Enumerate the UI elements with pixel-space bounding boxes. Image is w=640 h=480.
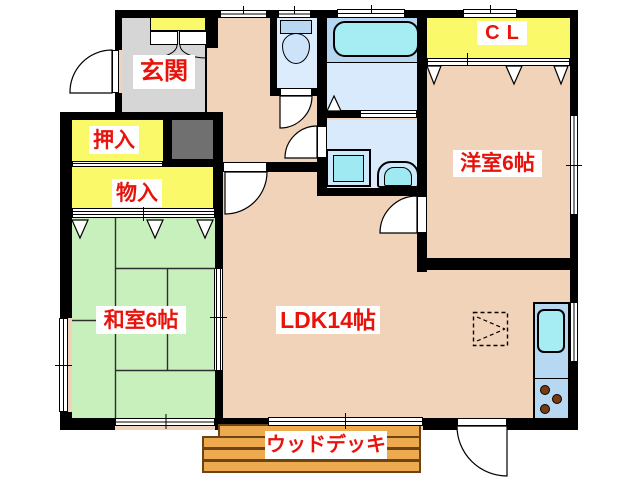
- wall-yoshitsu-left-a: [417, 10, 427, 196]
- window-top-toilet: [278, 10, 311, 18]
- label-monoire: 物入: [112, 179, 162, 207]
- label-wooddeck-text: ウッドデッキ: [266, 435, 386, 455]
- floor-plan: 玄関 押入 物入 和室6帖 LDK14帖 洋室6帖 CL ウッドデッキ: [0, 0, 640, 480]
- entrance-door-swing: [70, 50, 112, 93]
- wall-yoshitsu-left-b: [417, 233, 427, 272]
- window-left-washitsu: [59, 318, 68, 412]
- label-genkan: 玄関: [133, 55, 195, 89]
- window-top-closet: [463, 9, 517, 18]
- label-closet-cl: CL: [477, 21, 527, 45]
- wall-shoebox-monoire-line: [163, 161, 215, 167]
- wall-genkan-bottom: [60, 112, 223, 120]
- window-top-hall: [220, 10, 267, 18]
- wall-bottom-a: [60, 418, 115, 430]
- window-bottom-ldk-deck: [268, 417, 423, 426]
- wall-bottom-d: [507, 418, 578, 430]
- label-yoshitsu: 洋室6帖: [453, 150, 542, 177]
- bathtub: [333, 21, 419, 57]
- wall-yoshitsu-bottom: [427, 258, 578, 270]
- track-monoire: [72, 208, 215, 218]
- track-oshiire: [72, 161, 163, 167]
- track-closet-cl: [427, 58, 570, 66]
- yoshitsu-door-leaf: [417, 196, 427, 233]
- wall-bath-washroom: [327, 110, 360, 118]
- label-genkan-text: 玄関: [140, 60, 188, 84]
- window-bottom-washitsu: [115, 418, 215, 426]
- wall-washroom-bottom: [317, 188, 427, 196]
- wall-toilet-left: [270, 10, 277, 96]
- wall-hall-bottom: [267, 162, 317, 172]
- genkan-entry-step: [150, 17, 207, 31]
- wall-left-lower-a: [60, 112, 72, 318]
- toilet-door-leaf: [280, 88, 312, 96]
- wall-wet-mid-a: [317, 10, 327, 126]
- stove-burner-1: [540, 385, 550, 395]
- stove-burner-3: [540, 404, 550, 414]
- wall-oshiire-right: [163, 115, 170, 163]
- window-right-yoshitsu: [570, 115, 578, 215]
- entry-cabinet-door-right: [179, 31, 207, 45]
- label-ldk: LDK14帖: [276, 306, 380, 334]
- toilet-tank: [280, 20, 312, 34]
- entrance-door-leaf: [112, 50, 119, 93]
- slider-bath-washroom: [360, 110, 417, 118]
- kitchen-exterior-door-swing: [457, 426, 507, 476]
- label-closet-cl-text: CL: [485, 23, 526, 43]
- wall-washitsu-right-a: [215, 218, 223, 268]
- stove-burner-2: [552, 394, 562, 404]
- label-wooddeck: ウッドデッキ: [265, 431, 387, 459]
- window-top-bath: [337, 9, 405, 18]
- label-oshiire: 押入: [89, 126, 139, 154]
- kitchen-sink: [537, 309, 565, 353]
- wall-washitsu-right-b: [215, 371, 223, 418]
- label-monoire-text: 物入: [116, 183, 158, 204]
- kitchen-exterior-door-leaf: [457, 418, 507, 426]
- vanity-sink-bowl: [384, 167, 412, 186]
- wall-toilet-bottom-a: [270, 88, 280, 96]
- label-washitsu-text: 和室6帖: [104, 310, 179, 331]
- window-right-kitchen: [570, 302, 578, 362]
- label-oshiire-text: 押入: [93, 130, 135, 151]
- wall-left-upper-a: [115, 10, 122, 50]
- entry-cabinet-door-left: [150, 31, 178, 45]
- label-ldk-text: LDK14帖: [280, 309, 376, 332]
- wood-deck-row-4: [202, 460, 421, 473]
- label-yoshitsu-text: 洋室6帖: [460, 153, 535, 174]
- washing-machine-tub: [333, 155, 364, 182]
- shoe-cabinet: [170, 118, 215, 161]
- wall-right-a: [570, 10, 578, 115]
- label-washitsu: 和室6帖: [96, 306, 186, 334]
- slider-washitsu-ldk: [214, 268, 223, 371]
- wall-right-c: [570, 362, 578, 430]
- wall-bottom-c: [423, 418, 457, 430]
- washroom-door-leaf: [317, 126, 327, 158]
- hall-ldk-door-leaf: [223, 162, 267, 172]
